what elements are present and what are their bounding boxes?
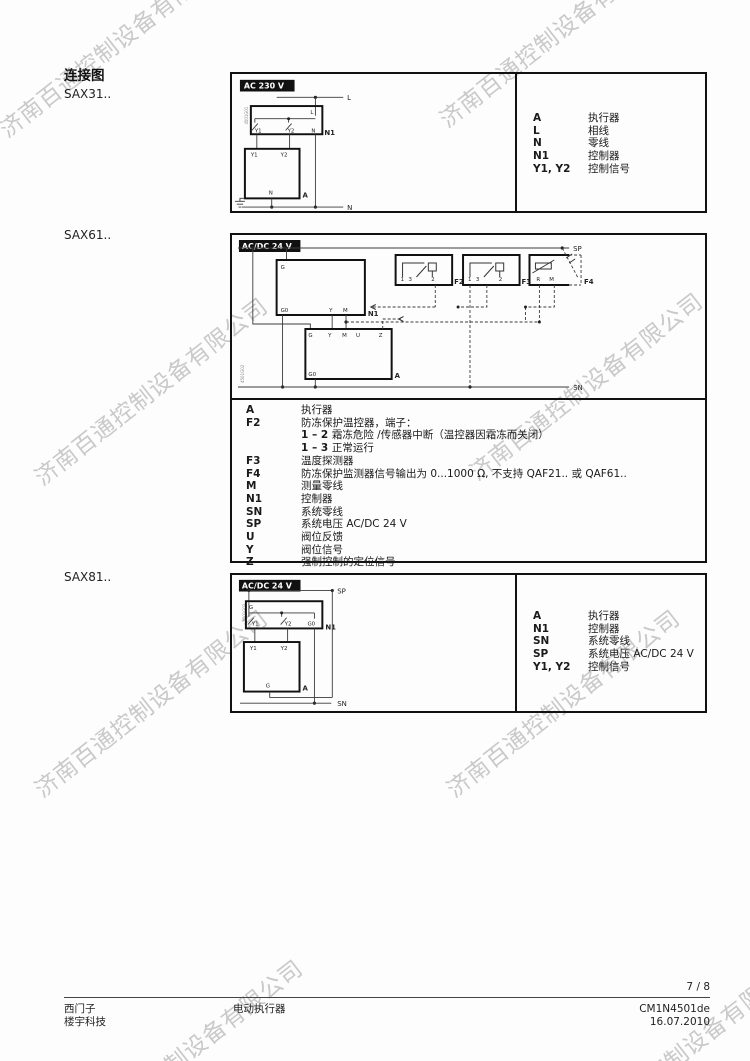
legend-row: SP系统电压 AC/DC 24 V [533,648,694,661]
actuator-box-a: Y1 Y2 N A [245,149,309,200]
legend-desc: 强制控制的定位信号 [301,556,396,569]
svg-text:F4: F4 [584,278,594,286]
legend-term: F3 [246,455,301,468]
legend-term: A [246,404,301,417]
svg-text:2: 2 [431,277,434,283]
model-label-sax61: SAX61.. [64,228,111,242]
svg-text:Y1: Y1 [249,646,257,652]
legend-row: M测量零线 [246,480,701,493]
legend-term: A [533,112,588,125]
legend-row: A执行器 [533,112,630,125]
ground-icon [235,198,245,207]
legend-desc: 系统电压 AC/DC 24 V [588,648,694,661]
legend-desc: 系统零线 [301,506,343,519]
svg-text:N: N [269,191,273,197]
legend-row: SN系统零线 [533,635,694,648]
legend-term: SN [246,506,301,519]
legend-term: Z [246,556,301,569]
svg-text:N1: N1 [368,310,379,318]
legend-term [246,429,301,442]
legend-row: N1控制器 [533,150,630,163]
legend-desc: 相线 [588,125,609,138]
svg-text:R: R [536,277,540,283]
figure-sax61: AC/DC 24 V 4501G02 SP G G0 Y M N1 [230,233,707,563]
footer-doc-title: 电动执行器 [233,1003,286,1016]
legend-row: U阀位反馈 [246,531,701,544]
legend-desc: 控制器 [588,623,620,636]
legend-term: Y1, Y2 [533,661,588,674]
legend-term: N1 [246,493,301,506]
legend-desc: 1 – 2 霜冻危险 /传感器中断（温控器因霜冻而关闭） [301,429,549,442]
figure-sax81: AC/DC 24 V 4501G03 SP G Y1 Y2 G0 N1 [230,573,707,713]
controller-box-n1: G Y1 Y2 G0 N1 [246,601,336,631]
legend-row: SN系统零线 [246,506,701,519]
svg-text:1: 1 [468,277,471,283]
legend-desc: 1 – 3 正常运行 [301,442,374,455]
svg-text:G0: G0 [281,308,289,314]
footer-company-line2: 楼宇科技 [64,1016,106,1029]
footer-company: 西门子 楼宇科技 [64,1003,106,1028]
legend-term: SN [533,635,588,648]
legend-desc: 控制信号 [588,163,630,176]
legend-row: N1控制器 [533,623,694,636]
power-chip: AC 230 V [240,80,295,92]
legend-row: 1 – 3 正常运行 [246,442,701,455]
svg-text:M: M [343,308,348,314]
frost-thermostat-f2: 1 3 2 F2 [396,255,464,286]
legend-desc: 测量零线 [301,480,343,493]
legend-row: Z强制控制的定位信号 [246,556,701,569]
neutral-rail: N [242,204,352,211]
svg-text:Y1: Y1 [254,128,262,134]
svg-text:2: 2 [499,277,502,283]
legend-row: A执行器 [246,404,701,417]
svg-text:G: G [266,684,270,690]
legend-row: Y阀位信号 [246,544,701,557]
legend-term: N1 [533,623,588,636]
actuator-box-a: Y1 Y2 G A [244,642,309,693]
legend-desc: 阀位信号 [301,544,343,557]
svg-text:SN: SN [337,700,347,708]
svg-text:G0: G0 [308,372,316,378]
legend-term: M [246,480,301,493]
svg-text:G0: G0 [307,622,315,628]
figure-sax31: AC 230 V 4501G01 L L Y1 Y2 N N1 [230,72,707,213]
svg-text:N1: N1 [324,129,335,137]
legend-desc: 零线 [588,137,609,150]
legend-sax61: A执行器F2防冻保护温控器，端子：1 – 2 霜冻危险 /传感器中断（温控器因霜… [232,400,705,569]
legend-desc: 阀位反馈 [301,531,343,544]
legend-row: N零线 [533,137,630,150]
model-label-sax81: SAX81.. [64,570,111,584]
svg-text:L: L [347,94,351,102]
svg-text:SP: SP [573,245,582,253]
temperature-sensor-f3: 1 3 2 F3 [463,255,531,286]
legend-row: SP系统电压 AC/DC 24 V [246,518,701,531]
svg-text:Y1: Y1 [251,622,259,628]
legend-term: F4 [246,468,301,481]
svg-text:1: 1 [401,277,404,283]
power-chip: AC/DC 24 V [239,240,300,252]
legend-term: A [533,610,588,623]
legend-desc: 执行器 [588,610,620,623]
svg-text:Y2: Y2 [280,646,288,652]
svg-text:Y2: Y2 [280,153,288,159]
legend-row: N1控制器 [246,493,701,506]
svg-text:N1: N1 [325,623,336,631]
svg-text:G: G [249,605,253,611]
sn-rail: SN [238,384,583,392]
wiring-diagram-sax81: AC/DC 24 V 4501G03 SP G Y1 Y2 G0 N1 [232,575,517,711]
watermark-text: 济南百通控制设备有限公司 [0,0,239,144]
legend-term: SP [533,648,588,661]
svg-text:G: G [281,265,285,271]
svg-text:3: 3 [409,277,413,283]
svg-text:Y2: Y2 [284,622,292,628]
legend-row: L相线 [533,125,630,138]
legend-row: F4防冻保护监测器信号输出为 0...1000 Ω, 不支持 QAF21.. 或… [246,468,701,481]
legend-term: L [533,125,588,138]
wiring-diagram-sax61: AC/DC 24 V 4501G02 SP G G0 Y M N1 [232,235,705,400]
legend-desc: 控制器 [301,493,333,506]
legend-term [246,442,301,455]
figure-code: 4501G02 [240,364,245,383]
svg-text:AC 230 V: AC 230 V [244,82,285,91]
legend-term: Y [246,544,301,557]
svg-text:L: L [310,110,313,116]
svg-text:Y: Y [328,308,333,314]
svg-text:Y: Y [327,333,332,339]
legend-desc: 系统电压 AC/DC 24 V [301,518,407,531]
footer-date: 16.07.2010 [500,1016,710,1029]
svg-text:AC/DC 24 V: AC/DC 24 V [242,242,293,251]
figure-code: 4501G01 [244,106,249,124]
datasheet-page: 济南百通控制设备有限公司 济南百通控制设备有限公司 济南百通控制设备有限公司 济… [0,0,750,1061]
legend-desc: 防冻保护温控器，端子： [301,417,417,430]
footer-company-line1: 西门子 [64,1003,106,1016]
controller-box-n1: G G0 Y M N1 [277,260,379,318]
controller-box-n1: L Y1 Y2 N N1 [251,106,335,137]
legend-term: Y1, Y2 [533,163,588,176]
legend-sax81: A执行器N1控制器SN系统零线SP系统电压 AC/DC 24 VY1, Y2控制… [517,575,698,711]
svg-text:M: M [342,333,347,339]
legend-term: N1 [533,150,588,163]
legend-desc: 执行器 [588,112,620,125]
svg-text:Z: Z [379,333,383,339]
legend-desc: 执行器 [301,404,333,417]
footer-doc-meta: CM1N4501de 16.07.2010 [500,1003,710,1028]
legend-desc: 系统零线 [588,635,630,648]
legend-term: F2 [246,417,301,430]
svg-text:G: G [308,333,312,339]
legend-desc: 控制器 [588,150,620,163]
svg-text:N: N [347,204,352,211]
actuator-box-a: G Y M U Z G0 A [305,329,400,380]
legend-desc: 防冻保护监测器信号输出为 0...1000 Ω, 不支持 QAF21.. 或 Q… [301,468,627,481]
legend-term: SP [246,518,301,531]
svg-text:3: 3 [476,277,480,283]
footer-divider [64,997,710,998]
svg-text:A: A [395,372,401,380]
wiring-diagram-sax31: AC 230 V 4501G01 L L Y1 Y2 N N1 [232,74,517,211]
page-number: 7 / 8 [500,981,710,994]
footer-doc-number: CM1N4501de [500,1003,710,1016]
svg-text:U: U [356,333,360,339]
svg-text:M: M [549,277,554,283]
sn-rail: SN [240,700,347,708]
svg-text:Y1: Y1 [250,153,258,159]
legend-term: N [533,137,588,150]
legend-row: Y1, Y2控制信号 [533,163,630,176]
legend-desc: 温度探测器 [301,455,354,468]
legend-desc: 控制信号 [588,661,630,674]
svg-text:A: A [303,685,309,693]
legend-row: F2防冻保护温控器，端子： [246,417,701,430]
frost-monitor-f4: R M F4 [529,248,593,286]
legend-row: 1 – 2 霜冻危险 /传感器中断（温控器因霜冻而关闭） [246,429,701,442]
legend-row: A执行器 [533,610,694,623]
svg-text:SP: SP [337,588,346,596]
page-title: 连接图 [64,64,105,84]
svg-text:A: A [303,191,309,199]
svg-text:N: N [311,128,315,134]
legend-row: F3温度探测器 [246,455,701,468]
legend-row: Y1, Y2控制信号 [533,661,694,674]
svg-text:Y2: Y2 [287,128,295,134]
model-label-sax31: SAX31.. [64,87,111,101]
dashed-signal-lines [346,285,554,387]
legend-sax31: A执行器L相线N零线N1控制器Y1, Y2控制信号 [517,74,634,211]
svg-text:SN: SN [573,384,583,392]
legend-term: U [246,531,301,544]
